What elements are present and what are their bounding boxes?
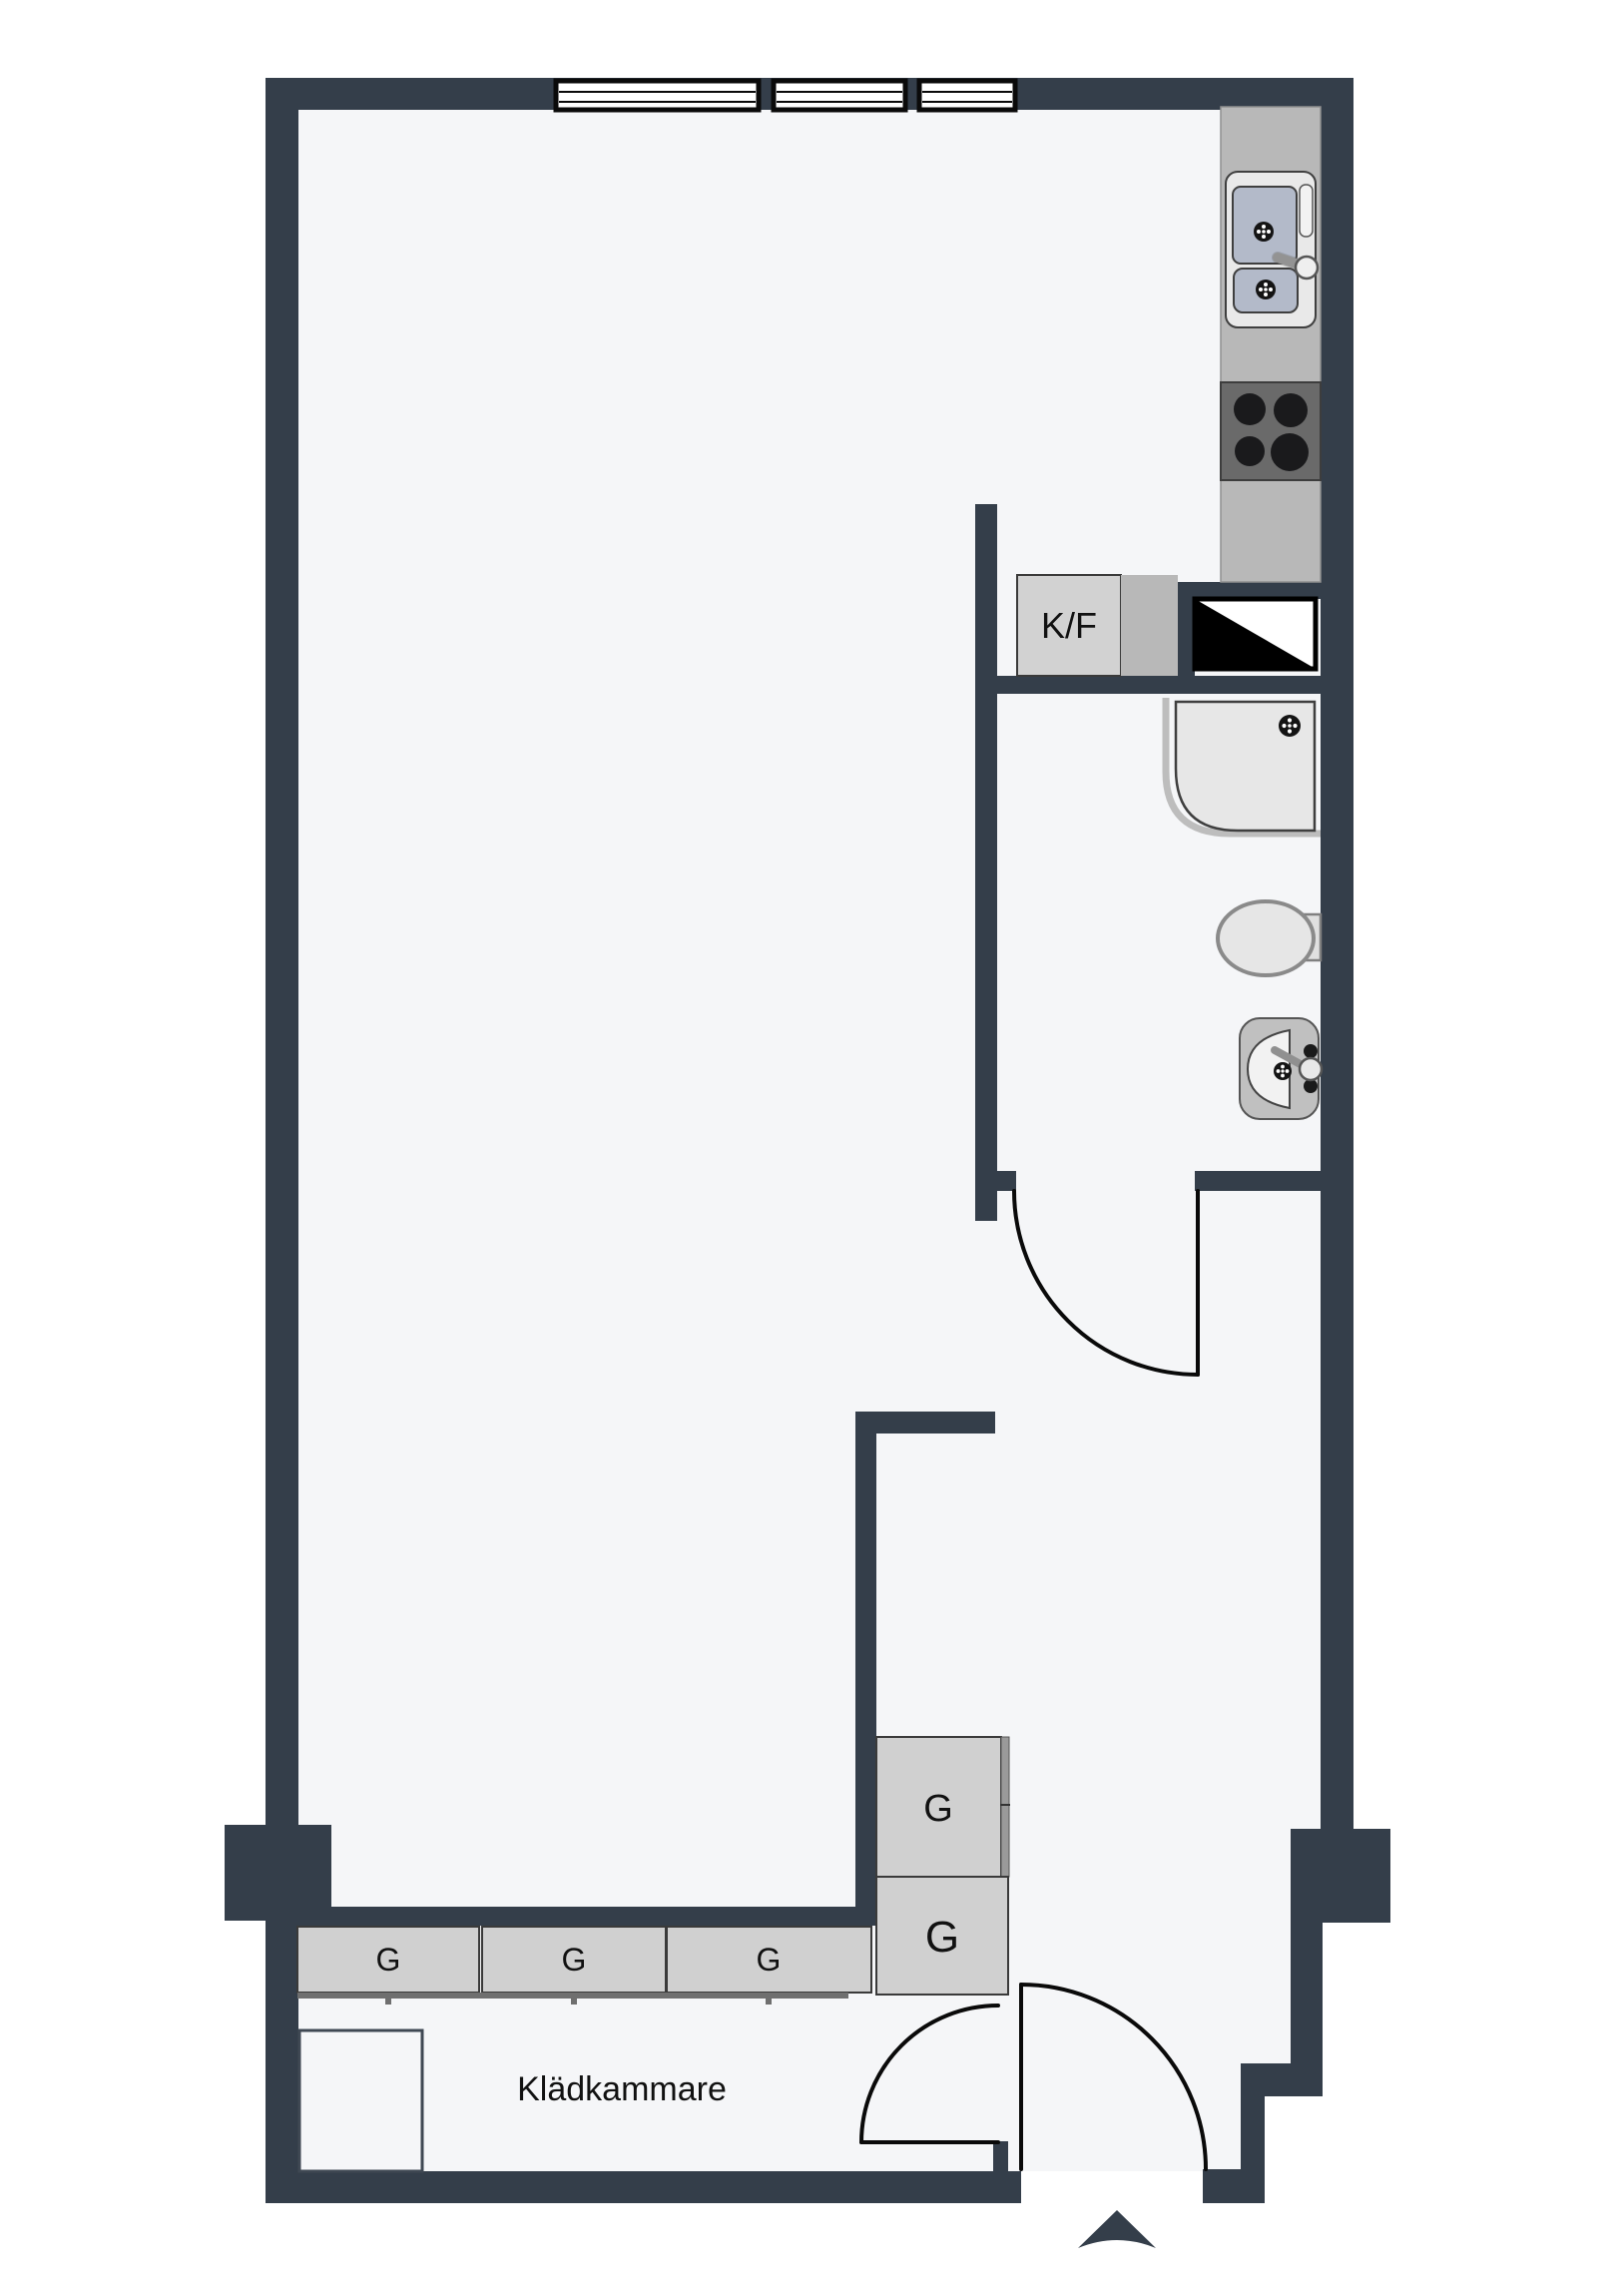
wall-right-step xyxy=(1241,2063,1323,2096)
faucet-knob xyxy=(1300,1058,1322,1080)
drain-icon xyxy=(1279,715,1301,737)
fridge-freezer-label: K/F xyxy=(1041,605,1097,646)
floor-area xyxy=(298,110,1321,2171)
wardrobe-label: G xyxy=(376,1942,401,1978)
wall-left-protrusion xyxy=(225,1825,331,1921)
track-tick xyxy=(766,1999,772,2005)
fridge-freezer-cabinet: K/F xyxy=(1017,575,1178,676)
closet-room-label: Klädkammare xyxy=(517,2070,727,2108)
wall-living-bottom xyxy=(288,1907,876,1926)
wall-bath-top xyxy=(975,676,1353,694)
window xyxy=(919,81,1015,110)
wall-right-upper xyxy=(1321,78,1353,1829)
window xyxy=(774,81,905,110)
kitchen-sink-icon xyxy=(1226,172,1318,327)
ventilation-shaft-icon xyxy=(1195,599,1316,669)
drain-icon xyxy=(1274,1062,1292,1080)
shower-icon xyxy=(1166,698,1321,834)
entry-door-stub xyxy=(993,2141,1008,2171)
wall-mid-vertical xyxy=(855,1412,876,1925)
wall-right-protrusion xyxy=(1291,1829,1390,1923)
windows xyxy=(556,81,1015,110)
track-tick xyxy=(571,1999,577,2005)
wall-bath-bottom xyxy=(1195,1171,1323,1191)
wall-bottom xyxy=(266,2171,1021,2203)
wardrobe-label: G xyxy=(562,1942,587,1978)
drain-icon xyxy=(1256,280,1276,299)
wall-hall-vertical xyxy=(975,504,997,1221)
wardrobe-track xyxy=(1001,1737,1009,1877)
drain-icon xyxy=(1254,222,1274,242)
wardrobe-label: G xyxy=(925,1913,959,1962)
kitchen-cabinet xyxy=(1121,575,1178,676)
wardrobe-label: G xyxy=(923,1788,953,1830)
window xyxy=(556,81,759,110)
bath-door-stub xyxy=(997,1171,1016,1191)
faucet-knob xyxy=(1296,257,1318,279)
stove-icon xyxy=(1221,382,1321,480)
floor-plan: K/F xyxy=(0,0,1623,2296)
wardrobe-row-track xyxy=(297,1993,848,1999)
bathroom-sink-icon xyxy=(1240,1018,1322,1119)
wall-bottom-right-piece xyxy=(1203,2169,1265,2203)
kitchen-counter-lower xyxy=(1221,480,1321,582)
faucet-spout xyxy=(1300,185,1313,237)
faucet-dot xyxy=(1304,1044,1318,1058)
entrance-arrow-icon xyxy=(1078,2210,1156,2248)
wardrobe-label: G xyxy=(757,1942,782,1978)
track-tick xyxy=(385,1999,391,2005)
